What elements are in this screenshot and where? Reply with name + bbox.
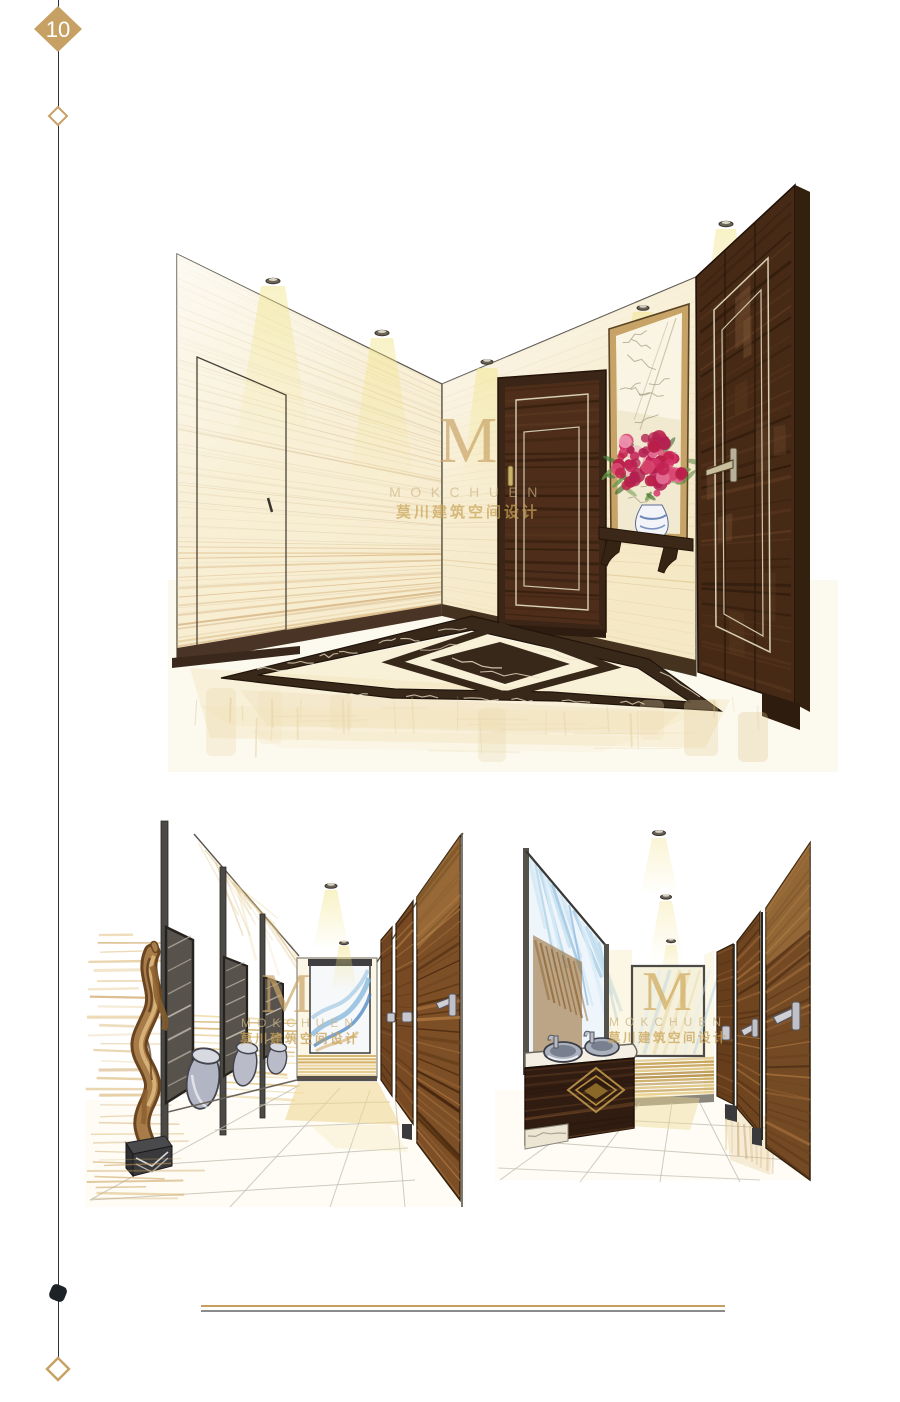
svg-text:10: 10 [46, 17, 70, 42]
svg-text:莫川建筑空间设计: 莫川建筑空间设计 [396, 503, 540, 521]
svg-text:MOKCHUEN: MOKCHUEN [241, 1016, 359, 1030]
svg-text:M: M [439, 404, 498, 477]
svg-text:M: M [642, 961, 692, 1023]
svg-text:莫川建筑空间设计: 莫川建筑空间设计 [240, 1031, 360, 1046]
svg-text:MOKCHUEN: MOKCHUEN [609, 1015, 727, 1029]
svg-text:MOKCHUEN: MOKCHUEN [389, 484, 547, 500]
svg-text:莫川建筑空间设计: 莫川建筑空间设计 [608, 1030, 728, 1045]
